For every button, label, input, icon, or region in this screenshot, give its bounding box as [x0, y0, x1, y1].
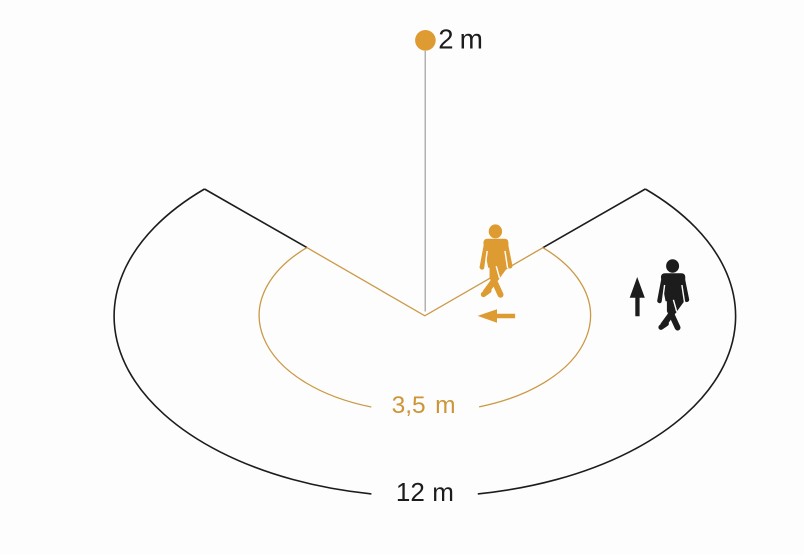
- svg-text:m: m: [432, 477, 454, 507]
- svg-text:3,5: 3,5: [392, 392, 426, 419]
- svg-text:12: 12: [396, 477, 425, 507]
- svg-text:2: 2: [438, 23, 453, 54]
- svg-text:m: m: [435, 392, 455, 419]
- svg-text:m: m: [460, 23, 483, 54]
